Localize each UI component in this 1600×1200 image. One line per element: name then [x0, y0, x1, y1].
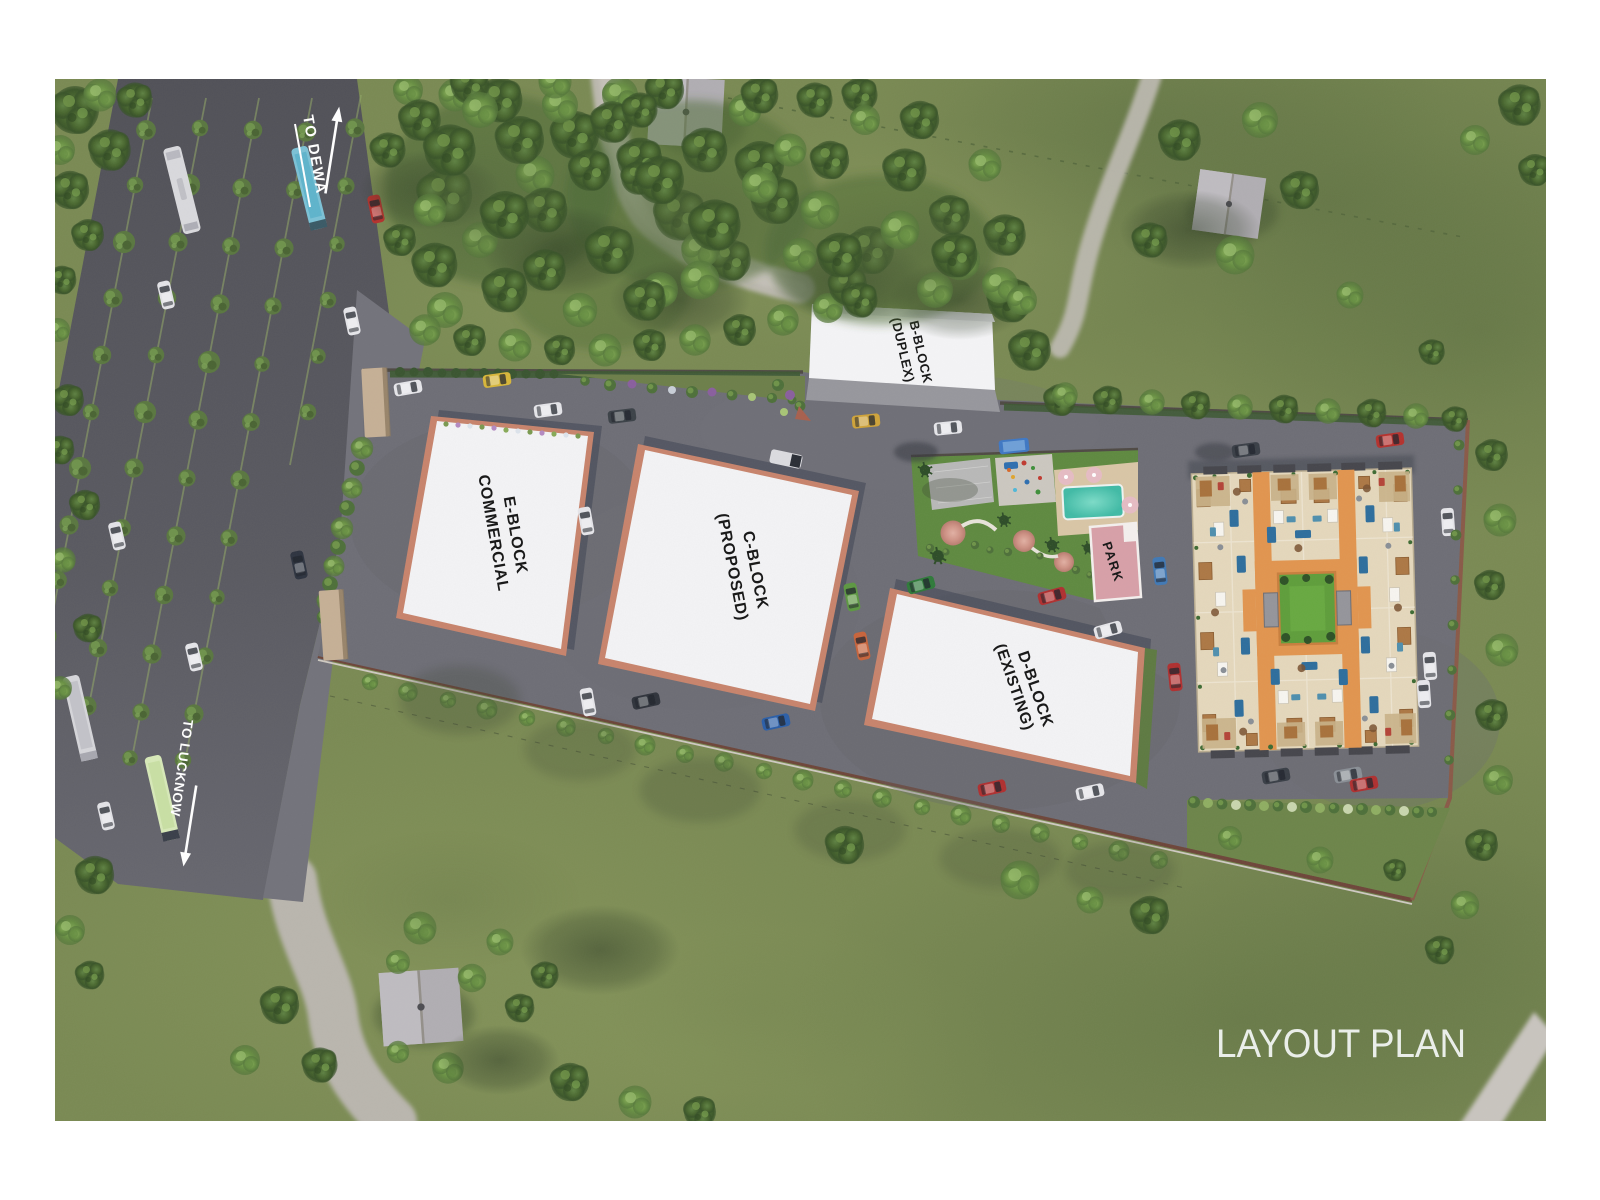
- svg-text:LAYOUT PLAN: LAYOUT PLAN: [1216, 1022, 1466, 1066]
